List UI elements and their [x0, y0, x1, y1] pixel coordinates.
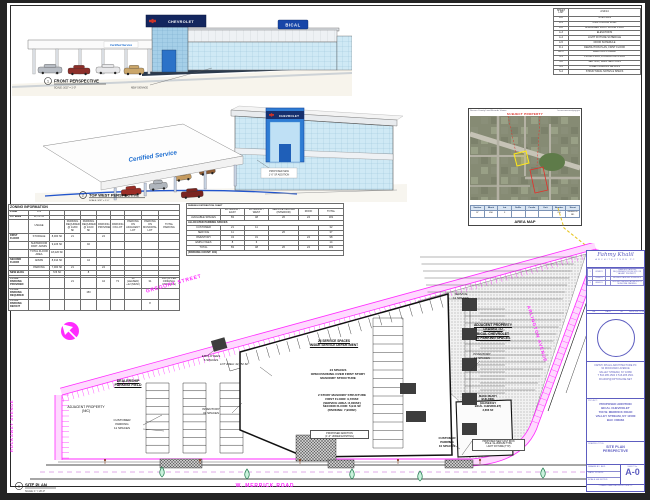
site-plan-drawing-label: 1 SITE PLAN SCALE: 1" = 20'-0": [14, 480, 104, 498]
entry-door: [162, 50, 176, 72]
svg-text:FRONT PERSPECTIVE: FRONT PERSPECTIVE: [54, 79, 99, 84]
architect-info: FAHMY KHALIL ARCHITECTURE PC 90 ROCKAWAY…: [587, 362, 644, 399]
label-light-fixture-note: PROPOSED NEW CAST IRON POLE / ALUMINUM T…: [472, 439, 525, 451]
revision-block: 102/08/21CHANGED PARKING REQUIREMENT FRO…: [587, 268, 644, 314]
label-dealership-field: DEALERSHIP PARKING FIELD: [102, 379, 154, 388]
cars: [38, 64, 144, 75]
date-value: 11/16/20: [595, 472, 603, 474]
map-url-text: lrv.nassaucountyny.gov: [557, 110, 580, 112]
signage-note: NEW SIGNAGE: [131, 87, 149, 90]
svg-text:SITE PLAN: SITE PLAN: [25, 483, 47, 488]
label-inventory-31: INVENTORY 31 SPACES: [190, 408, 232, 416]
svg-text:SCALE: 1" = 20'-0": SCALE: 1" = 20'-0": [25, 490, 45, 493]
addition-note-line1: PROPOSED NEW: [269, 170, 290, 173]
drawing-sheet-viewport: BICAL CHEVROLET Certified Service NEW SI…: [0, 0, 650, 500]
label-customer-11: CUSTOMER PARKING 11 SPACES: [102, 419, 142, 430]
copyright-note: © FAHMY KHALIL ARCHITECTURE PC: [587, 485, 644, 491]
chevrolet-sign-text: CHEVROLET: [279, 114, 299, 118]
label-customer-10: CUSTOMER PARKING 10 SPACES: [428, 437, 466, 448]
label-adjacent-leased: ADJACENT PROPERTY LEASED TO BICAL CHEVRO…: [454, 323, 532, 340]
title-block: Fahmy Khalil ARCHITECTURE PC 102/08/21CH…: [586, 250, 645, 492]
seal-area: [587, 314, 644, 362]
project-name-address: PROPOSED ADDITION BICAL CHEVROLET 700 W.…: [587, 402, 644, 422]
street-label-left: ROCKAWAY AVENUE: [9, 378, 14, 452]
sheet-number: A-0: [621, 468, 644, 477]
map-source-text: Nassau County Land Records Viewer: [470, 110, 506, 112]
professional-seal: [597, 319, 635, 357]
label-lot-area: LOT AREA: 44,752 SF: [220, 363, 280, 366]
architect-address: FAHMY KHALIL ARCHITECTURE PC 90 ROCKAWAY…: [587, 364, 644, 381]
drawn-by-value: BK/L: [601, 466, 606, 468]
plan-sheet: BICAL CHEVROLET Certified Service NEW SI…: [7, 3, 645, 493]
certified-service-sign: Certified Service: [110, 43, 133, 47]
svg-text:2: 2: [82, 193, 84, 197]
glass-curtain-wall: [187, 42, 337, 70]
bical-sign-text: BICAL: [285, 23, 300, 28]
site-plan-drawing: [10, 243, 642, 493]
chevrolet-sign-text: CHEVROLET: [168, 20, 194, 24]
label-building-areas: 2 STORY MASONRY STRUCTURE FIRST FLOOR: 9…: [304, 394, 380, 413]
north-arrow-icon: [61, 322, 79, 340]
addition-note-line2: 1'-0" SF ADDITION: [269, 174, 290, 177]
site-plan: GREGORY STREET ARLINGTON AVENUE W. MERRI…: [10, 243, 642, 493]
label-service-26: 26 SERVICE SPACES INSIDE SERVICE DEPARTM…: [298, 339, 370, 347]
label-adjacent-nic: ADJACENT PROPERTY (NIC): [56, 405, 116, 414]
label-open-parking-24: 24 SPACES OPEN PARKING OVER FIRST STORY …: [300, 369, 376, 381]
satellite-map: [470, 116, 580, 200]
firm-logo-subtitle: ARCHITECTURE PC: [587, 259, 644, 261]
front-perspective-rendering: BICAL CHEVROLET Certified Service NEW SI…: [12, 6, 352, 96]
svg-text:1: 1: [47, 79, 49, 83]
label-make-ready: MAKE READY BUILDING (LEASED BY BICAL CHE…: [466, 395, 510, 412]
label-service-11: SERVICE 11 SPACES: [444, 293, 478, 301]
firm-logo: Fahmy Khalil ARCHITECTURE PC: [587, 251, 644, 268]
upper-facade: [187, 30, 337, 42]
label-inventory-12: INVENTORY 12 SPACES: [462, 353, 502, 361]
entry-door: [279, 144, 291, 162]
svg-text:1: 1: [18, 484, 20, 488]
scale-value: AS NOTED: [596, 479, 607, 481]
top-west-perspective-rendering: CHEVROLET Certified Service PROPOSED NEW…: [35, 98, 407, 202]
drawing-title-box: DRAWING TITLE: SITE PLAN PERSPECTIVE: [587, 442, 644, 465]
label-addition-note: PROPOSED ADDITION (1'-0" UNDER EXISTING): [310, 430, 369, 439]
drawing-title-text: SITE PLAN PERSPECTIVE: [587, 445, 644, 455]
svg-text:SCALE: 3/32" = 1'-0": SCALE: 3/32" = 1'-0": [54, 87, 76, 90]
subject-parcel-outline: [514, 151, 529, 166]
sheet-list: SHEET LIST2/14/14A-0SITE PLANA-1FIRST FL…: [553, 8, 641, 75]
street-label-merrick: W. MERRICK ROAD: [210, 483, 320, 489]
svg-text:SCALE: 3/32" = 1'-0": SCALE: 3/32" = 1'-0": [89, 199, 109, 202]
project-info: PROJECT: PROPOSED ADDITION BICAL CHEVROL…: [587, 399, 644, 442]
revision-header: No.DATEBYDESCRIPTION: [587, 310, 644, 313]
svg-text:TOP WEST PERSPECTIVE: TOP WEST PERSPECTIVE: [89, 192, 139, 197]
fields-block: DRAWN BY: BK/L DATE: 11/16/20 SCALE: AS …: [587, 465, 644, 485]
